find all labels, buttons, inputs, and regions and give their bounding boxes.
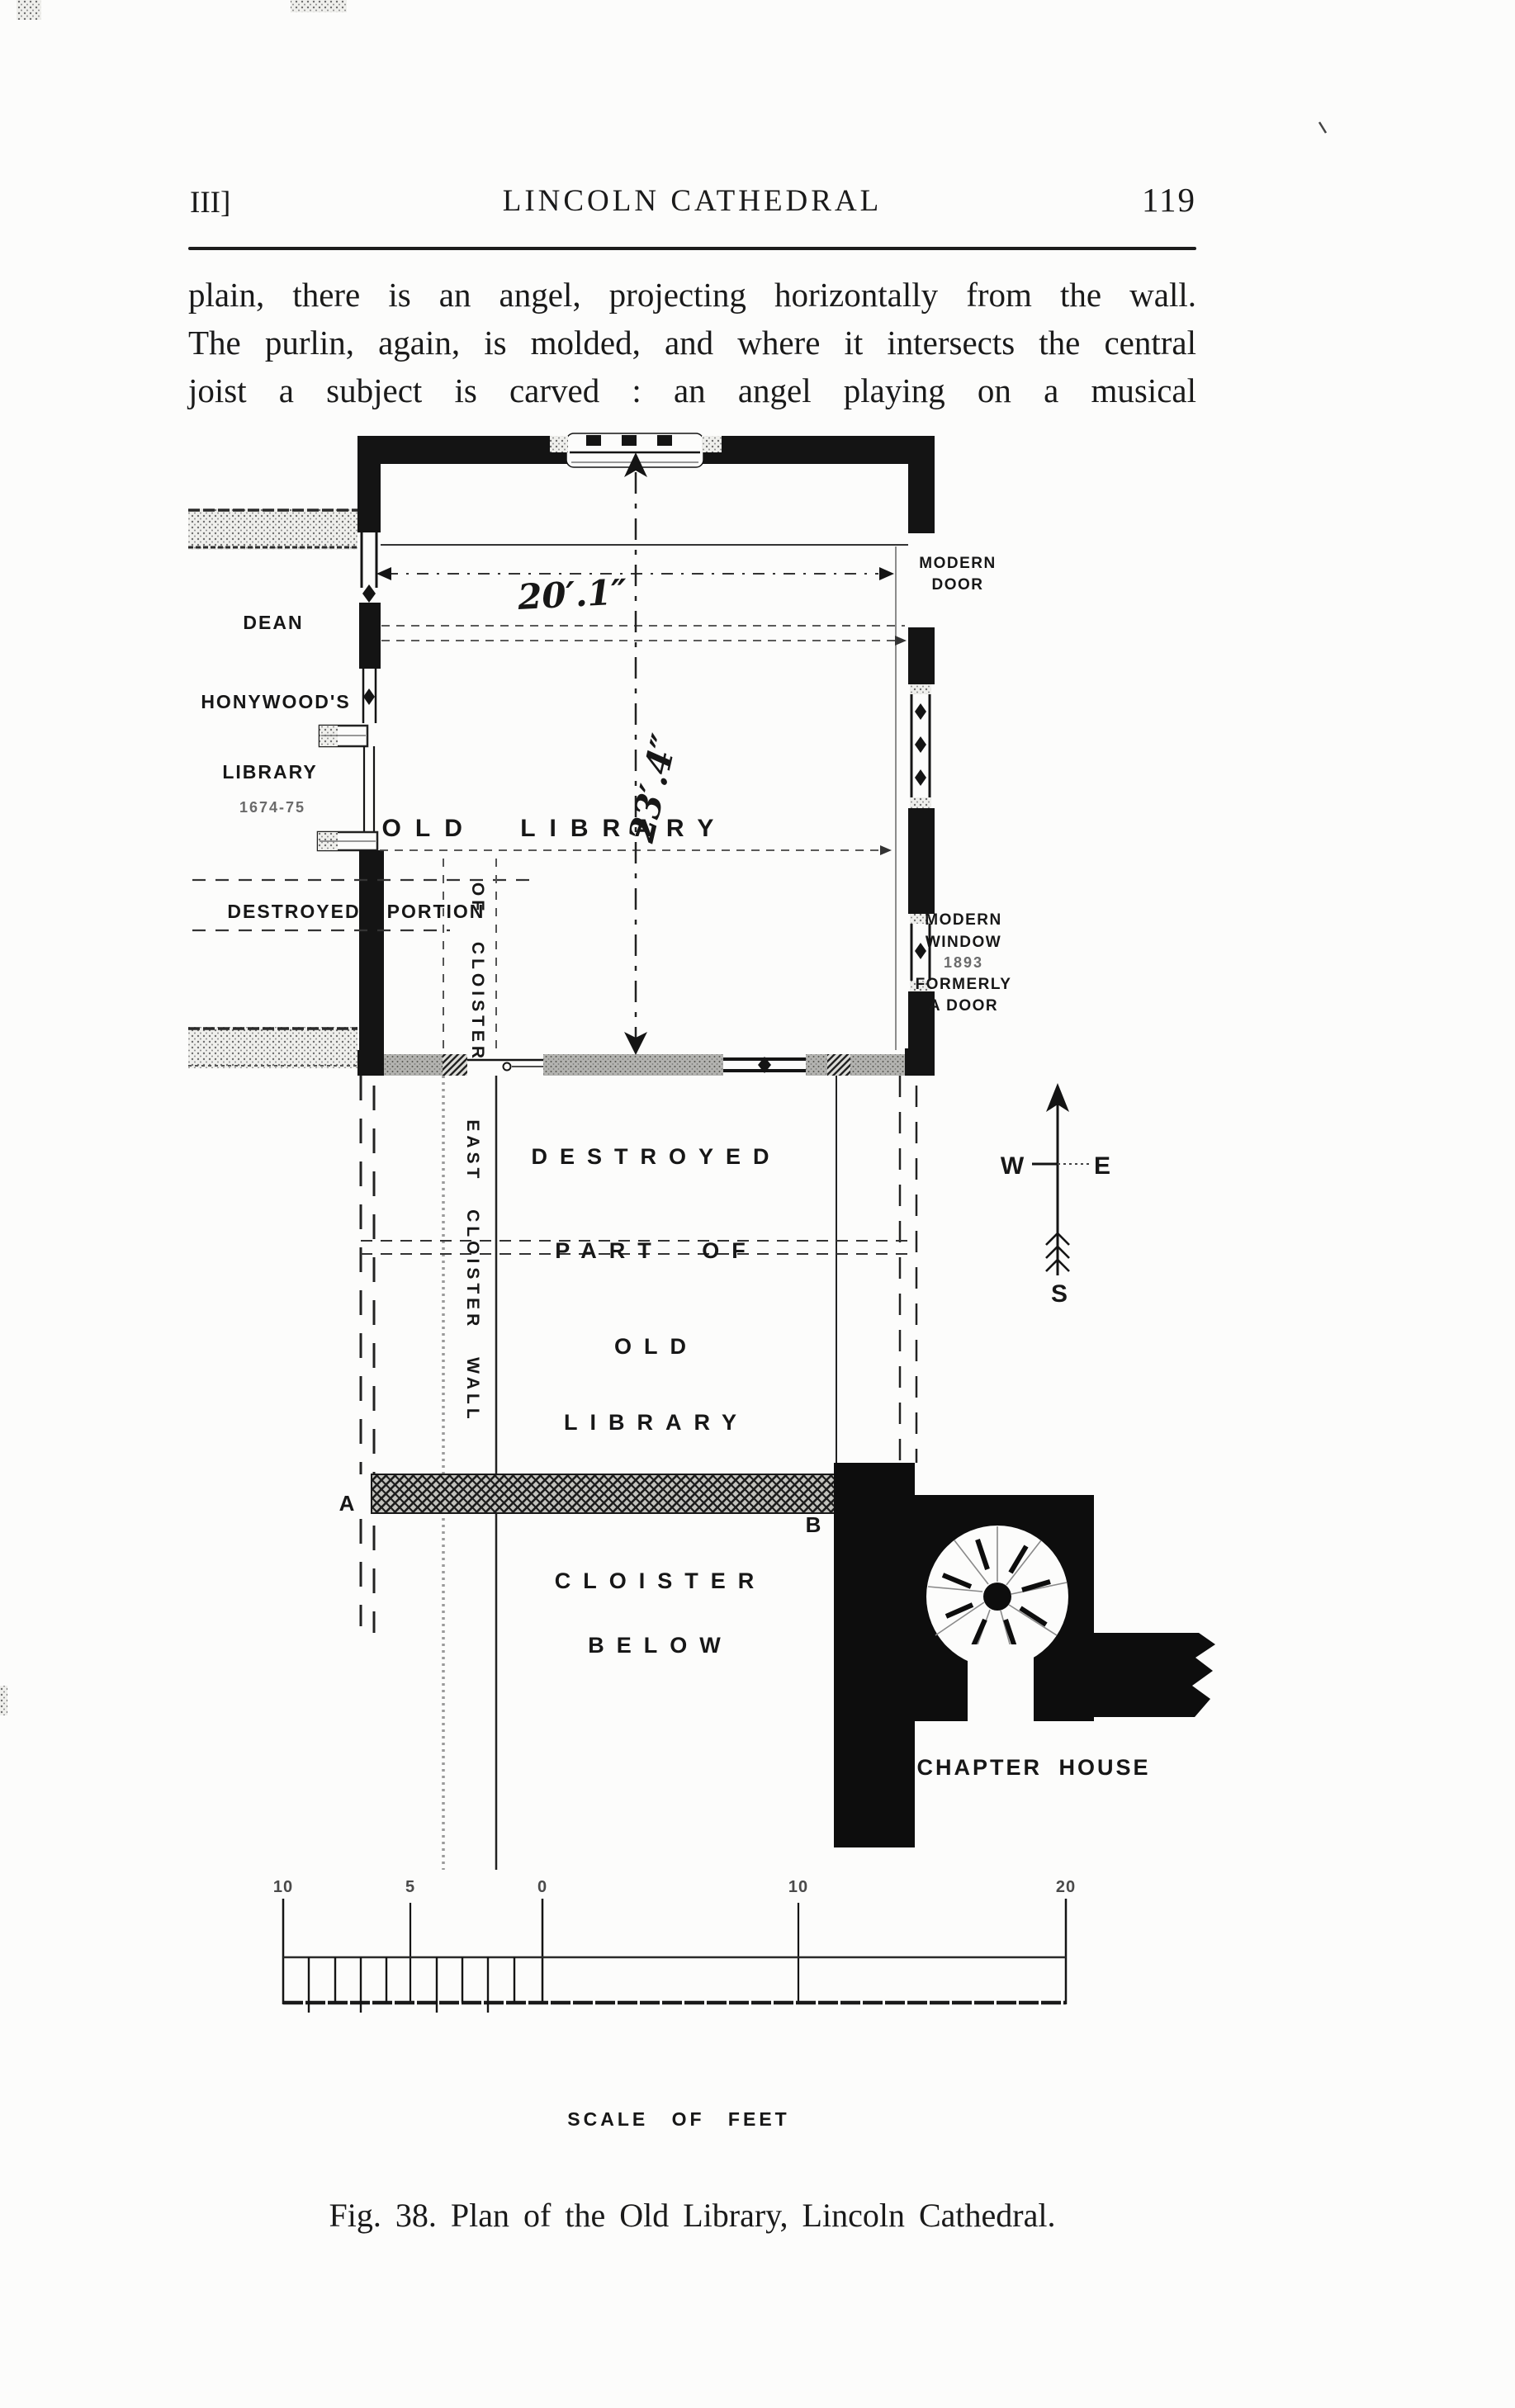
- label-dean: DEAN: [243, 612, 303, 633]
- compass: [1032, 1083, 1091, 1275]
- room-destroyed-1: DESTROYED: [531, 1144, 781, 1169]
- destroyed-part-lines: [361, 1076, 916, 1870]
- scale-tick-20: 20: [1056, 1878, 1076, 1896]
- compass-west: W: [1001, 1152, 1025, 1180]
- label-formerly: FORMERLY: [916, 976, 1012, 993]
- room-cloister: CLOISTER: [555, 1568, 767, 1593]
- label-modern-window-1: MODERN: [925, 911, 1001, 929]
- room-destroyed-4: LIBRARY: [564, 1410, 749, 1435]
- plan-figure: 20′.1″ 23′.4″ DEAN HONYWOOD'S LIBRARY 16…: [0, 0, 1515, 2408]
- compass-east: E: [1094, 1152, 1110, 1180]
- scale-of-feet-label: SCALE OF FEET: [567, 2108, 789, 2130]
- scan-artifacts: [0, 0, 1326, 1715]
- figure-caption: Fig. 38. Plan of the Old Library, Lincol…: [188, 2196, 1196, 2235]
- scale-tick-10l: 10: [273, 1878, 293, 1896]
- room-destroyed-3: OLD: [614, 1334, 698, 1359]
- scale-bar: [283, 1899, 1066, 2013]
- label-modern-door-1: MODERN: [919, 555, 996, 572]
- room-destroyed-2: PART OF: [555, 1238, 758, 1263]
- label-a-door: A DOOR: [929, 997, 998, 1015]
- ab-wall: [372, 1474, 836, 1513]
- label-chapter-house: CHAPTER HOUSE: [916, 1755, 1150, 1780]
- label-modern-window-2: WINDOW: [926, 934, 1001, 951]
- marker-a: A: [339, 1491, 355, 1516]
- label-window-year: 1893: [944, 954, 983, 971]
- scale-tick-5: 5: [405, 1878, 415, 1896]
- chapter-house: [834, 1463, 1215, 1847]
- scale-tick-10r: 10: [788, 1878, 808, 1896]
- marker-b: B: [806, 1512, 821, 1537]
- label-years: 1674-75: [239, 799, 305, 816]
- room-old-library: OLD LIBRARY: [382, 815, 728, 842]
- dean-wall-hatched: [188, 509, 357, 550]
- label-modern-door-2: DOOR: [932, 576, 984, 594]
- room-below: BELOW: [588, 1633, 733, 1658]
- east-wall: [896, 436, 935, 1054]
- label-east-cloister-wall: EAST CLOISTER WALL: [463, 1119, 482, 1422]
- south-wall-band: [357, 1048, 935, 1076]
- north-wall: [357, 433, 933, 467]
- label-destroyed: DESTROYED: [227, 901, 360, 922]
- label-of-cloister: OF CLOISTER: [468, 882, 487, 1062]
- compass-south: S: [1051, 1280, 1068, 1308]
- garden-wall-hatched: [188, 1027, 357, 1068]
- label-library: LIBRARY: [222, 761, 317, 783]
- label-honywoods: HONYWOOD'S: [201, 691, 350, 712]
- dim-width-label: 20′.1″: [516, 571, 628, 617]
- book-page: III] LINCOLN CATHEDRAL 119 plain, there …: [0, 0, 1515, 2408]
- scale-tick-0: 0: [537, 1878, 547, 1896]
